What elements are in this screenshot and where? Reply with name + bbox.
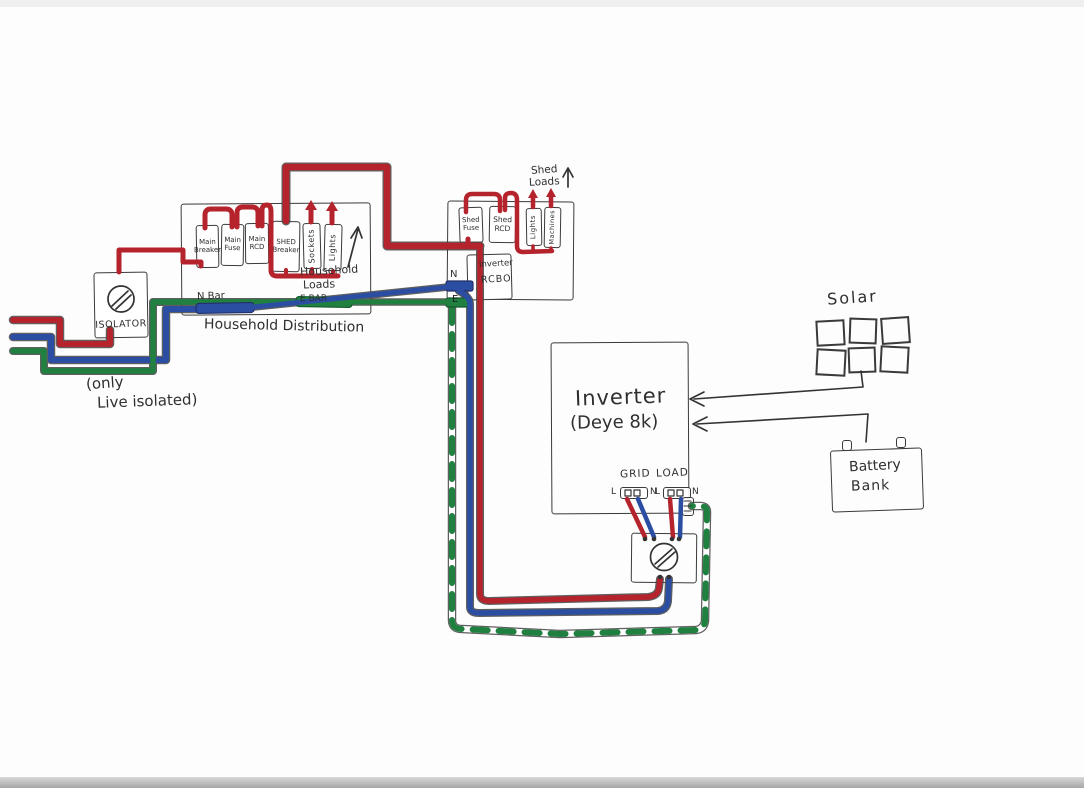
breaker-label: Main Fuse [222, 237, 243, 252]
breaker-main-rcd: Main RCD [245, 223, 269, 264]
shed-e-bar-label: E [452, 294, 458, 305]
breaker-label: Lights [530, 215, 538, 239]
scan-edge-top [0, 0, 1084, 7]
solar-panel [815, 348, 846, 377]
grid-label: GRID [620, 467, 651, 480]
shed-n-bar-label: N [450, 269, 457, 280]
supply-note-line2: Live isolated) [97, 390, 198, 411]
shed-loads-label-line2: Loads [529, 175, 560, 189]
breaker-label: Main RCD [246, 236, 268, 251]
inverter-name: Inverter [575, 383, 667, 410]
breaker-label: Lights [328, 234, 337, 261]
solar-panel [815, 319, 845, 346]
wiring-sketch-page: Main Breaker Main Fuse Main RCD SHED Bre… [0, 0, 1084, 788]
battery-label-line2: Bank [851, 477, 891, 494]
inverter-rcbo-label-line2: RCBO [481, 273, 512, 286]
load-label: LOAD [656, 466, 689, 479]
shed-lights-arrow [528, 189, 538, 198]
solar-panel [849, 318, 878, 345]
breaker-label: Machines [549, 210, 557, 245]
inverter-model: (Deye 8k) [570, 411, 659, 434]
shed-loads-arrow [563, 168, 573, 187]
solar-panel [848, 347, 877, 374]
earth-terminal-block [682, 497, 694, 516]
solar-label: Solar [826, 286, 878, 308]
battery-terminal-left [842, 440, 852, 451]
e-bar-label: E BAR [300, 294, 327, 304]
load-terminal-n: N [692, 487, 699, 497]
breaker-label: SHED Breaker [272, 239, 299, 255]
breaker-label: Sockets [307, 229, 317, 264]
n-bar-label: N Bar [197, 291, 225, 303]
breaker-label: Shed RCD [490, 216, 515, 233]
breaker-main-fuse: Main Fuse [221, 224, 245, 266]
load-terminal-l: L [655, 487, 660, 497]
changeover-switch-box [631, 533, 698, 584]
grid-terminal-strip [620, 487, 648, 499]
scan-edge-bottom [0, 777, 1084, 788]
breaker-shed-fuse: Shed Fuse [458, 207, 483, 244]
inverter-rcbo-label-line1: Inverter [479, 258, 513, 270]
breaker-shed-lights: Lights [526, 208, 543, 246]
isolator-label: ISOLATOR [95, 318, 147, 331]
shed-machines-arrow [546, 188, 556, 197]
supply-note-line1: (only [85, 373, 124, 394]
battery-terminal-right [896, 437, 906, 448]
breaker-sockets: Sockets [302, 223, 321, 269]
battery-to-inverter-line [693, 414, 868, 442]
household-loads-label-line2: Loads [303, 277, 336, 291]
breaker-shed-machines: Machines [544, 207, 562, 248]
breaker-label: Main Breaker [194, 239, 221, 255]
battery-label-line1: Battery [849, 457, 902, 476]
grid-terminal-l: L [611, 487, 616, 497]
solar-panel [879, 345, 909, 373]
breaker-main-breaker: Main Breaker [196, 225, 220, 268]
breaker-shed-breaker: SHED Breaker [272, 221, 301, 272]
solar-panel [880, 316, 911, 345]
breaker-shed-rcd: Shed RCD [489, 206, 517, 243]
breaker-label: Shed Fuse [460, 217, 483, 233]
household-title: Household Distribution [204, 316, 365, 335]
